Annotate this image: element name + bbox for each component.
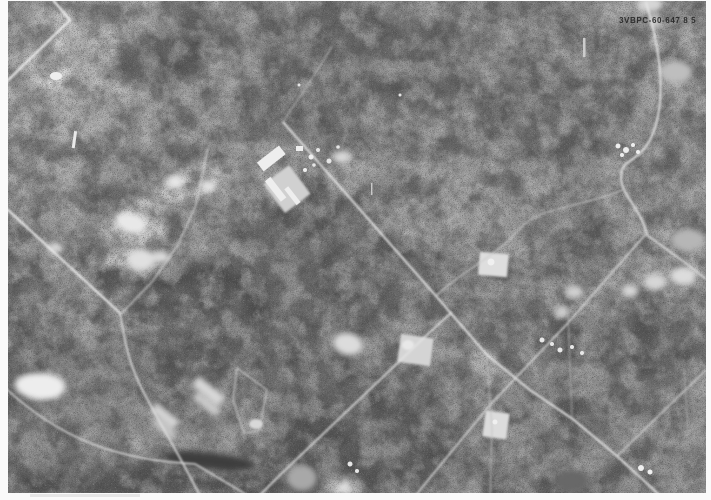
- svg-text:3VBPC-60-647 8 5: 3VBPC-60-647 8 5: [619, 16, 696, 25]
